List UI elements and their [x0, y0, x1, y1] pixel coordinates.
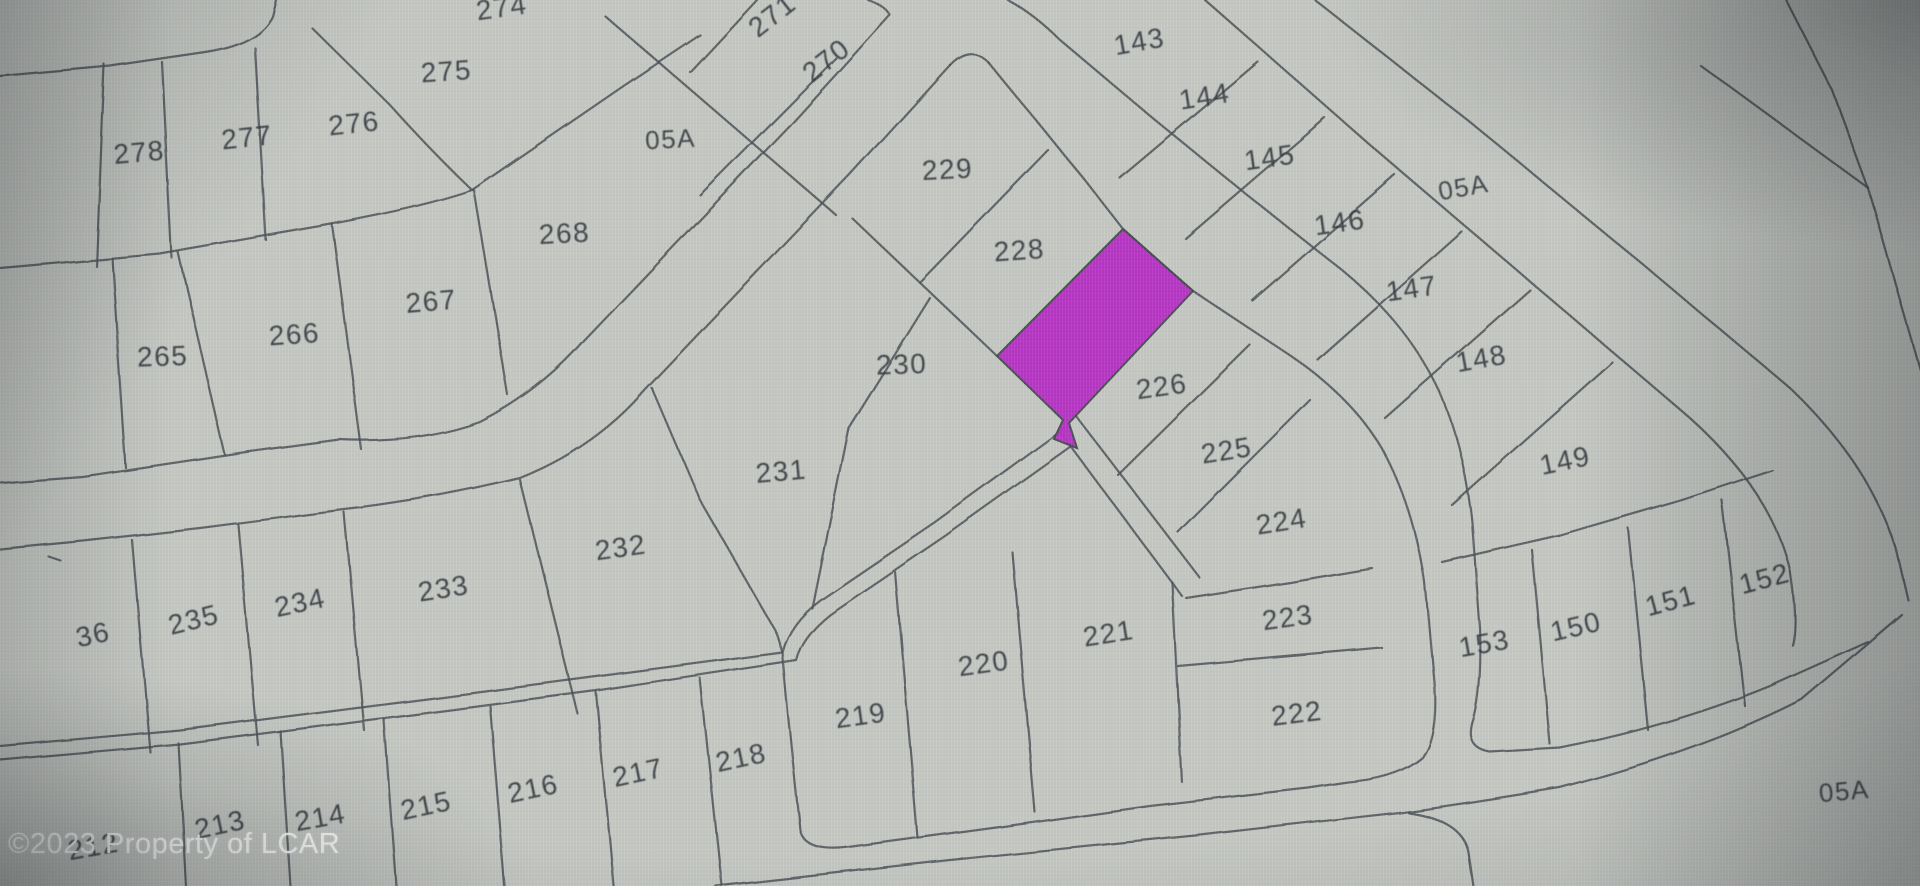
parcel-boundary-line [96, 64, 104, 266]
parcel-boundaries [0, 0, 1920, 886]
parcel-boundary-line [238, 525, 258, 745]
parcel-boundary-line [1786, 0, 1868, 188]
lot-label: 220 [956, 644, 1011, 682]
parcel-boundary-line [1532, 550, 1550, 744]
parcel-boundary-line [1012, 552, 1035, 812]
parcel-boundary-line [1178, 648, 1382, 666]
lot-label: 146 [1312, 203, 1367, 241]
parcel-boundary-line [1628, 528, 1648, 730]
lot-label: 05A [1436, 168, 1491, 206]
lot-labels: 27427527627727827127005A2682672662652292… [65, 0, 1870, 866]
parcel-boundary-line [472, 35, 700, 190]
lot-label: 153 [1456, 624, 1512, 663]
parcel-boundary-line [280, 731, 290, 886]
parcel-boundary-line [1700, 65, 1920, 370]
lot-label: 231 [754, 454, 808, 489]
parcel-boundary-line [700, 678, 722, 886]
parcel-boundary-line [48, 556, 60, 560]
lot-label: 268 [538, 216, 591, 250]
lot-label: 219 [833, 696, 888, 734]
plat-map: 27427527627727827127005A2682672662652292… [0, 0, 1920, 886]
parcel-boundary-line [1185, 118, 1325, 238]
parcel-boundary-line [344, 512, 364, 730]
lot-label: 228 [993, 233, 1046, 267]
lot-label: 152 [1736, 557, 1793, 600]
lot-label: 234 [272, 582, 329, 623]
lot-label: 267 [404, 284, 458, 319]
parcel-boundary-line [1172, 582, 1182, 782]
parcel-boundary-line [652, 388, 782, 652]
parcel-boundary-line [596, 692, 614, 886]
parcel-boundary-line [132, 540, 150, 752]
lot-label: 224 [1254, 502, 1309, 541]
parcel-boundary-line [950, 54, 988, 65]
lot-label: 278 [112, 135, 166, 170]
parcel-boundary-line [0, 444, 1074, 760]
parcel-boundary-line [605, 16, 836, 215]
lot-label: 275 [420, 54, 473, 88]
lot-label: 148 [1453, 339, 1509, 378]
lot-label: 145 [1242, 138, 1297, 176]
parcel-boundary-line [384, 719, 396, 886]
lot-label: 150 [1547, 606, 1604, 648]
lot-label: 144 [1177, 77, 1232, 116]
parcel-boundary-line [332, 224, 362, 450]
lot-label: 222 [1270, 695, 1325, 732]
lot-label: 05A [1818, 774, 1871, 808]
parcel-boundary-line [782, 62, 1435, 849]
lot-label: 230 [876, 348, 928, 381]
parcel-boundary-line [852, 218, 997, 356]
lot-label: 143 [1111, 22, 1167, 61]
parcel-boundary-line [1408, 812, 1473, 886]
parcel-boundary-line [1120, 62, 1258, 178]
lot-label: 265 [137, 340, 189, 373]
parcel-boundary-line [178, 743, 186, 886]
parcel-boundary-line [895, 572, 918, 838]
lot-label: 276 [327, 105, 381, 141]
parcel-boundary-line [0, 190, 472, 268]
lot-label: 151 [1642, 579, 1699, 622]
parcel-boundary-line [716, 615, 1902, 886]
lot-label: 216 [505, 768, 562, 809]
plat-map-svg: 27427527627727827127005A2682672662652292… [0, 0, 1920, 886]
lot-label: 235 [165, 598, 222, 640]
lot-label: 233 [416, 569, 471, 608]
lot-label: 226 [1134, 367, 1189, 405]
lot-label: 270 [796, 32, 855, 88]
lot-label: 229 [921, 152, 974, 186]
parcel-boundary-line [812, 298, 930, 608]
lot-label: 221 [1081, 614, 1136, 653]
parcel-boundary-line [1722, 500, 1745, 706]
lot-label: 215 [398, 785, 455, 826]
lot-label: 232 [593, 528, 648, 566]
parcel-boundary-line [1442, 470, 1772, 562]
parcel-boundary-line [112, 258, 126, 468]
lot-label: 149 [1537, 440, 1594, 481]
parcel-boundary-line [1186, 568, 1372, 598]
lot-label: 277 [220, 119, 274, 155]
parcel-boundary-line [1452, 362, 1612, 505]
parcel-boundary-line [0, 0, 276, 76]
lot-label: 218 [713, 737, 770, 778]
copyright-watermark: ©2023 Property of LCAR [8, 828, 340, 861]
lot-label: 217 [610, 752, 667, 793]
lot-label: 274 [474, 0, 529, 26]
parcel-boundary-line [1076, 416, 1200, 578]
lot-label: 36 [73, 616, 113, 653]
lot-label: 147 [1384, 269, 1439, 307]
parcel-boundary-line [474, 190, 508, 395]
lot-label: 223 [1260, 598, 1315, 636]
lot-label: 05A [644, 123, 696, 156]
lot-label: 266 [268, 317, 321, 351]
parcel-boundary-line [1060, 432, 1182, 596]
parcel-boundary-line [490, 706, 505, 886]
